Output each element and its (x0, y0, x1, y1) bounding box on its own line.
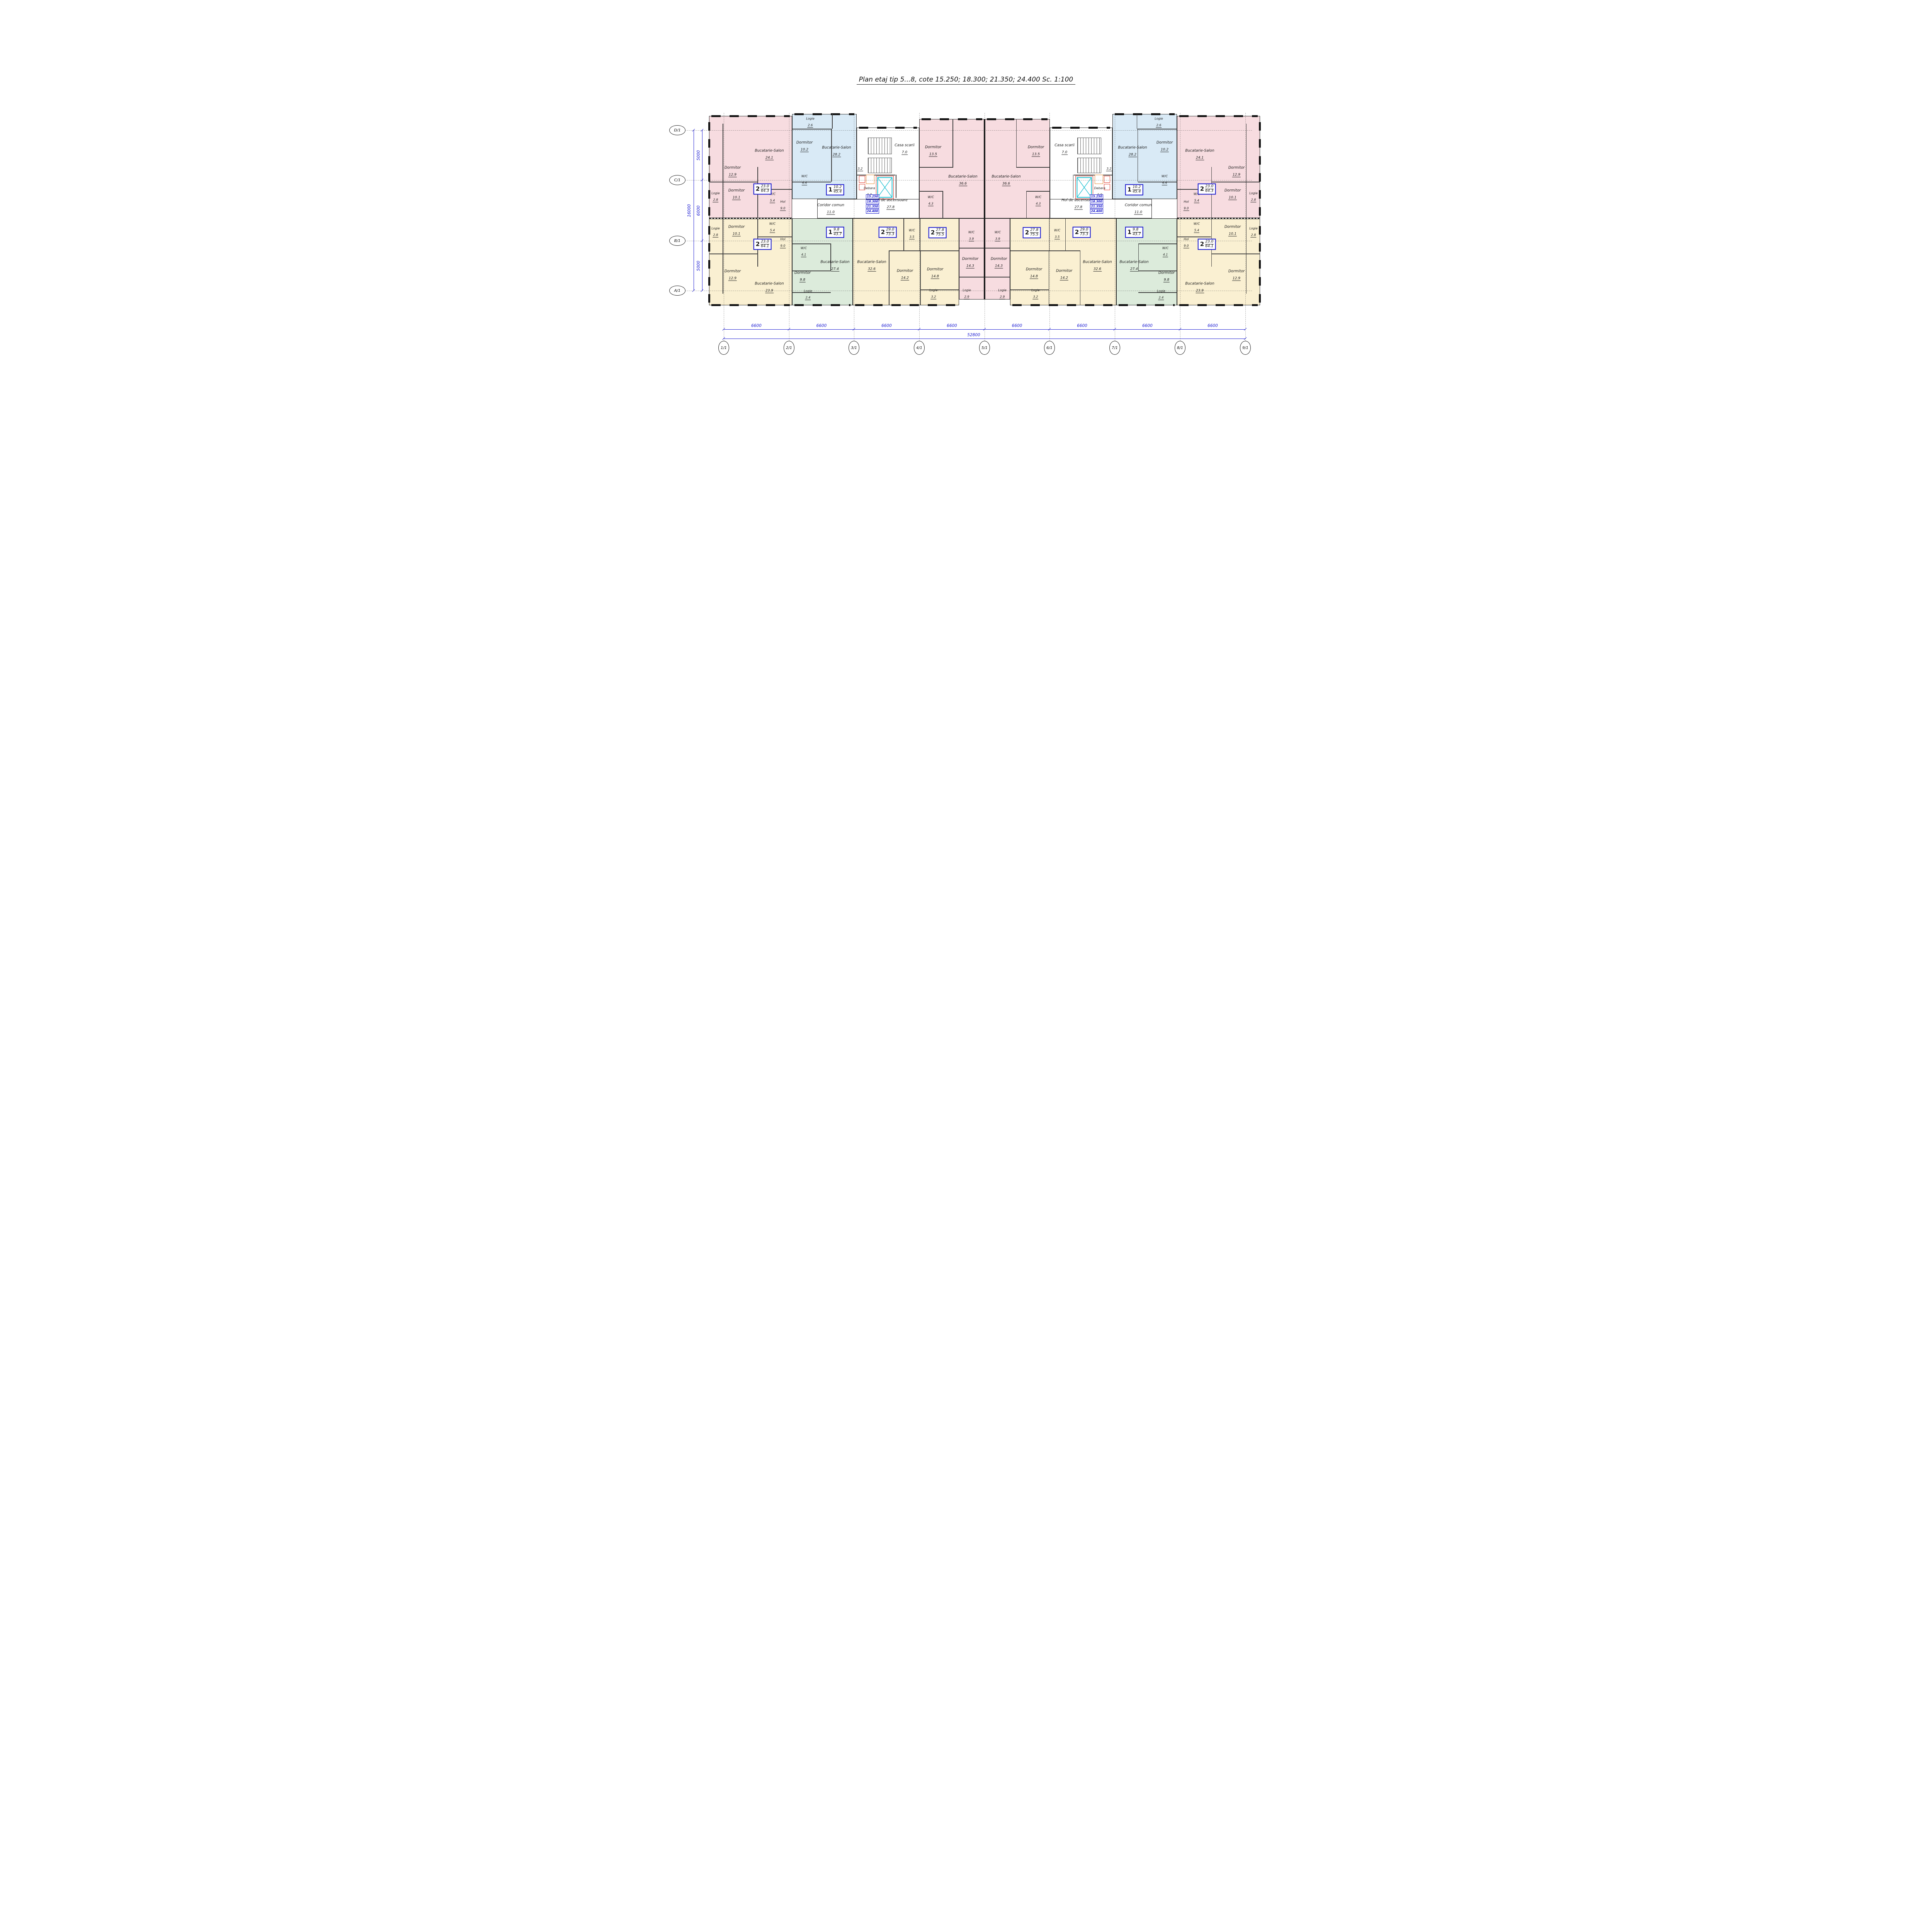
room-label-casa-scarii-7-0-mirror: Casa scarii7.0 (1054, 144, 1074, 155)
room-label-casa-scarii-7-0: Casa scarii7.0 (895, 144, 914, 155)
room-area: 12.9 (1232, 173, 1241, 177)
dim-label-6600: 6600 (947, 323, 957, 328)
drawing-title: Plan etaj tip 5...8, cote 15.250; 18.300… (665, 76, 1267, 83)
room-area: 2.8 (713, 199, 719, 203)
room-area: 4.4 (1162, 182, 1168, 186)
room-name: Dormitor (1156, 141, 1173, 145)
room-label-dormitor-10-1-mirror: Dormitor10.1 (1225, 225, 1241, 237)
room-label-bucatarie-salon-36-6-mirror: Bucatarie-Salon36.6 (992, 175, 1020, 186)
room-name: Logie (929, 289, 938, 293)
room-label-dormitor-10-2-mirror: Dormitor10.2 (1156, 141, 1173, 152)
apartment-badge-2-64-1-mirror: 223.064.1 (1198, 239, 1216, 250)
badge-room-count: 2 (881, 229, 885, 236)
dim-label-6000: 6000 (696, 205, 701, 216)
room-label-bucatarie-salon-36-6: Bucatarie-Salon36.6 (948, 175, 977, 186)
room-label-dormitor-9-8-mirror: Dormitor9.8 (1158, 271, 1175, 283)
room-name: Logie (1249, 227, 1258, 231)
interior-wall-4 (709, 254, 758, 254)
dim-label-6600: 6600 (751, 323, 762, 328)
room-name: W/C (1162, 247, 1168, 250)
room-area: 28.2 (832, 153, 841, 157)
interior-wall-28 (959, 277, 985, 277)
room-name: Bucatarie-Salon (822, 146, 851, 150)
room-label-dormitor-13-5-mirror: Dormitor13.5 (1028, 146, 1044, 157)
interior-wall-21 (920, 250, 921, 305)
badge-room-count: 1 (1128, 229, 1131, 236)
room-area: 23.9 (765, 289, 774, 293)
dim-label-6600: 6600 (1207, 323, 1218, 328)
axis-bubble-6-1: 6/1 (1044, 341, 1055, 355)
room-name: Dormitor (1026, 268, 1042, 272)
badge-total-area: 43.7 (1133, 233, 1141, 237)
room-name: W/C (769, 223, 776, 226)
room-area: 7.0 (901, 150, 908, 155)
interior-wall-23 (919, 167, 952, 168)
room-area: 3.2 (1106, 167, 1112, 171)
room-area: 14.3 (995, 264, 1003, 268)
room-name: W/C (995, 231, 1001, 235)
room-name: W/C (1162, 175, 1168, 179)
room-area: 2.8 (713, 234, 719, 238)
room-label-w-c-3-5: W/C3.5 (909, 229, 915, 240)
room-area: 3.9 (995, 238, 1001, 242)
interior-wall-11 (857, 175, 895, 175)
room-area: 3.2 (931, 296, 937, 300)
room-area: 12.9 (1232, 276, 1241, 281)
interior-wall-19-mirror (1065, 218, 1066, 250)
room-area: 2.6 (808, 124, 813, 128)
interior-wall-0 (723, 124, 723, 294)
room-area: 28.2 (1128, 153, 1137, 157)
room-name: W/C (1054, 229, 1060, 233)
room-area: 13.5 (1032, 152, 1040, 157)
room-name: Dormitor (1225, 189, 1241, 193)
axis-bubble-7-1: 7/1 (1109, 341, 1120, 355)
room-label-hol-9-0-mirror: Hol9.0 (1184, 238, 1189, 248)
interior-wall-12 (896, 175, 896, 198)
room-label-dormitor-14-3: Dormitor14.3 (962, 257, 978, 269)
elevation-value: 18.300 (866, 199, 879, 204)
room-area: 2.4 (805, 296, 811, 300)
interior-wall-26 (942, 191, 943, 218)
room-area: 3.2 (857, 167, 863, 171)
axis-bubble-1-1: 1/1 (718, 341, 729, 355)
dim-label-6600: 6600 (816, 323, 827, 328)
room-area: 4.3 (1036, 203, 1041, 206)
elevation-value: 15.250 (1090, 194, 1103, 199)
room-name: Bucatarie-Salon (1118, 146, 1147, 150)
room-name: Dormitor (728, 189, 745, 193)
room-area: 10.2 (1160, 148, 1169, 152)
room-label-dormitor-14-8-mirror: Dormitor14.8 (1026, 268, 1042, 279)
room-label-bucatarie-salon-27-4: Bucatarie-Salon27.4 (820, 260, 849, 272)
axis-bubble-4-1: 4/1 (914, 341, 925, 355)
dim-label-5000: 5000 (696, 260, 701, 271)
elevation-value: 21.350 (1090, 204, 1103, 209)
dim-label-6600: 6600 (1142, 323, 1153, 328)
room-label-bucatarie-salon-32-6-mirror: Bucatarie-Salon32.6 (1083, 260, 1112, 272)
interior-wall-27 (959, 248, 985, 248)
apartment-badge-2-75-5: 227.875.5 (929, 227, 947, 238)
room-label-dormitor-14-2-mirror: Dormitor14.2 (1056, 269, 1072, 281)
dim-line-total-left (694, 130, 694, 291)
room-area: 14.2 (901, 276, 909, 280)
axis-line-7-1 (1115, 113, 1115, 343)
interior-wall-17-mirror (1080, 250, 1081, 305)
badge-room-count: 2 (931, 229, 935, 236)
apartment-badge-1-43-7: 19.843.7 (826, 227, 844, 238)
interior-wall-23-mirror (1017, 167, 1050, 168)
room-name: Dormitor (1028, 146, 1044, 150)
room-name: Dormitor (796, 141, 813, 145)
room-name: Debara (864, 187, 875, 191)
apartment-badge-1-45-4-mirror: 110.245.4 (1125, 184, 1143, 196)
room-area: 14.8 (1030, 274, 1038, 279)
interior-wall-18 (889, 250, 959, 251)
interior-wall-22-mirror (1010, 289, 1049, 290)
room-name: Dormitor (728, 225, 745, 230)
badge-room-count: 2 (756, 186, 760, 192)
room-area: 11.0 (827, 210, 835, 214)
room-area: 10.2 (800, 148, 809, 152)
room-area: 9.8 (1163, 278, 1170, 282)
room-area: 24.1 (1196, 156, 1204, 160)
badge-total-area: 64.3 (1205, 189, 1213, 194)
room-area: 32.6 (1093, 267, 1102, 271)
room-area: 10.1 (1228, 196, 1237, 200)
room-area: 2.4 (1158, 296, 1164, 300)
room-area: 14.2 (1060, 276, 1068, 280)
room-name: W/C (909, 229, 915, 233)
room-label-dormitor-14-8: Dormitor14.8 (927, 268, 943, 279)
room-label-bucatarie-salon-24-1-mirror: Bucatarie-Salon24.1 (1185, 149, 1214, 160)
room-label-logie-3-2: Logie3.2 (929, 289, 938, 300)
interior-wall-12-mirror (1073, 175, 1074, 198)
room-label-logie-2-8-mirror: Logie2.8 (1249, 192, 1258, 203)
room-name: Bucatarie-Salon (1083, 260, 1112, 265)
drawing-sheet: Plan etaj tip 5...8, cote 15.250; 18.300… (665, 0, 1267, 426)
room-area: 4.3 (928, 203, 934, 206)
room-name: Dormitor (927, 268, 943, 272)
room-area: 36.6 (959, 182, 967, 186)
room-name: Bucatarie-Salon (992, 175, 1020, 179)
room-name: Dormitor (925, 146, 941, 150)
room-name: Dormitor (794, 271, 811, 276)
room-area: 2.9 (964, 296, 970, 300)
room-label-bucatarie-salon-27-4-mirror: Bucatarie-Salon27.4 (1119, 260, 1148, 272)
interior-wall-26-mirror (1026, 191, 1027, 218)
axis-line-1-1 (724, 113, 724, 343)
room-label-dormitor-14-2: Dormitor14.2 (897, 269, 913, 281)
dim-label-16000: 16000 (687, 204, 692, 217)
room-label-w-c-4-4: W/C4.4 (801, 175, 808, 186)
room-label-dormitor-10-1: Dormitor10.1 (728, 189, 745, 200)
room-area: 24.1 (765, 156, 774, 160)
room-name: Hol (1184, 201, 1189, 204)
room-name: Dormitor (1158, 271, 1175, 276)
room-label-logie-2-6-mirror: Logie2.6 (1155, 117, 1163, 128)
room-area: 27.8 (886, 205, 895, 209)
badge-room-count: 2 (1200, 186, 1204, 192)
room-label-dormitor-12-9-mirror: Dormitor12.9 (1228, 270, 1245, 281)
elevation-value: 21.350 (866, 204, 879, 209)
room-label-bucatarie-salon-23-9: Bucatarie-Salon23.9 (755, 282, 784, 293)
room-area: 10.1 (732, 232, 741, 236)
axis-bubble-5-1: 5/1 (979, 341, 990, 355)
room-area: 9.8 (799, 278, 806, 282)
room-label-w-c-3-9: W/C3.9 (968, 231, 975, 242)
room-area: 3.9 (969, 238, 975, 242)
room-label-hol-9-0-mirror: Hol9.0 (1184, 201, 1189, 211)
room-label-w-c-3-9-mirror: W/C3.9 (995, 231, 1001, 242)
room-name: Logie (806, 117, 815, 121)
axis-bubble-d-1: D/1 (669, 125, 685, 135)
interior-wall-0-mirror (1246, 124, 1247, 294)
dim-label-52800: 52800 (967, 333, 980, 337)
apartment-badge-2-75-5-mirror: 227.875.5 (1023, 227, 1041, 238)
room-area: 3.2 (1033, 296, 1039, 300)
room-name: Dormitor (1228, 270, 1245, 274)
room-name: Logie (963, 289, 971, 293)
interior-wall-8-mirror (1137, 114, 1138, 129)
room-name: Dormitor (724, 166, 741, 170)
dim-label-6600: 6600 (1077, 323, 1087, 328)
room-area: 32.6 (867, 267, 876, 271)
room-name: Logie (711, 192, 720, 196)
room-label-dormitor-12-9: Dormitor12.9 (724, 270, 741, 281)
interior-wall-25-mirror (1027, 191, 1050, 192)
axis-bubble-8-1: 8/1 (1175, 341, 1185, 355)
room-label-logie-2-4-mirror: Logie2.4 (1157, 290, 1165, 300)
room-area: 7.0 (1061, 150, 1068, 155)
elevation-stack: 15.25018.30021.35024.400 (866, 194, 879, 214)
axis-line-8-1 (1180, 113, 1180, 343)
room-name: W/C (968, 231, 975, 235)
room-area: 2.6 (1156, 124, 1162, 128)
room-label-logie-2-8: Logie2.8 (711, 192, 720, 203)
room-area: 9.0 (780, 207, 786, 211)
axis-bubble-a-1: A/1 (669, 286, 685, 296)
room-label-hol-9-0: Hol9.0 (780, 238, 786, 248)
axis-line-2-1 (789, 113, 789, 343)
interior-wall-25 (919, 191, 942, 192)
room-label-logie-2-4: Logie2.4 (804, 290, 812, 300)
room-name: W/C (801, 175, 808, 179)
floor-plan: 15.25018.30021.35024.40015.25018.30021.3… (665, 0, 1267, 426)
party-wall-0-mirror (1177, 218, 1260, 219)
badge-room-count: 1 (828, 229, 832, 236)
room-name: Dormitor (1056, 269, 1072, 274)
room-label-w-c-3-5-mirror: W/C3.5 (1054, 229, 1060, 240)
room-area: 3.5 (1054, 236, 1060, 240)
elevation-value: 15.250 (866, 194, 879, 199)
room-name: Logie (1157, 290, 1165, 293)
room-label-coridor-comun-11-0-mirror: Coridor comun11.0 (1125, 204, 1152, 215)
room-area: 9.0 (780, 245, 786, 248)
interior-wall-7 (792, 129, 832, 129)
room-name: Bucatarie-Salon (755, 282, 784, 286)
interior-wall-10-mirror (1138, 182, 1177, 182)
room-label-area-3-2: 3.2 (857, 164, 863, 171)
badge-total-area: 45.4 (1133, 190, 1141, 194)
axis-bubble-b-1: B/1 (669, 236, 685, 246)
room-name: Casa scarii (1054, 144, 1074, 148)
axis-line-5-1 (985, 113, 985, 343)
badge-total-area: 43.7 (833, 233, 842, 237)
interior-wall-6-mirror (1177, 237, 1211, 237)
room-area: 4.1 (1163, 254, 1168, 257)
room-area: 27.4 (831, 267, 839, 271)
interior-wall-21-mirror (1049, 250, 1049, 305)
room-area: 10.1 (1228, 232, 1237, 236)
elevation-value: 18.300 (1090, 199, 1103, 204)
room-label-w-c-4-3: W/C4.3 (928, 196, 934, 206)
interior-wall-24-mirror (1016, 119, 1017, 168)
room-area: 14.3 (966, 264, 975, 268)
badge-room-count: 1 (828, 186, 832, 193)
axis-line-d-1 (685, 130, 1252, 131)
storage-closet-icon-2-mirror (1095, 175, 1103, 184)
elevation-value: 24.400 (1090, 209, 1103, 214)
badge-total-area: 73.3 (886, 233, 894, 237)
room-area: 36.6 (1002, 182, 1010, 186)
room-area: 5.4 (1194, 229, 1200, 233)
axis-bubble-3-1: 3/1 (849, 341, 859, 355)
apartment-2r-end-top-mirror (1177, 116, 1260, 218)
room-area: 2.8 (1251, 199, 1257, 203)
room-name: Hol (1184, 238, 1189, 242)
room-name: Logie (1031, 289, 1040, 293)
interior-wall-10 (792, 182, 831, 182)
apartment-badge-2-64-3-mirror: 223.064.3 (1198, 184, 1216, 195)
badge-room-count: 2 (756, 241, 760, 248)
apartment-badge-2-64-3: 223.064.3 (753, 184, 772, 195)
room-area: 4.1 (801, 254, 807, 257)
badge-total-area: 64.1 (1205, 245, 1213, 249)
party-wall-0 (709, 218, 792, 219)
room-label-bucatarie-salon-28-2-mirror: Bucatarie-Salon28.2 (1118, 146, 1147, 157)
interior-wall-4-mirror (1211, 254, 1260, 254)
room-name: Dormitor (962, 257, 978, 262)
room-label-hol-9-0: Hol9.0 (780, 201, 786, 211)
room-name: Hol (780, 201, 786, 204)
room-name: Dormitor (991, 257, 1007, 262)
room-name: Bucatarie-Salon (1185, 149, 1214, 153)
room-area: 12.9 (728, 276, 737, 281)
room-label-bucatarie-salon-23-9-mirror: Bucatarie-Salon23.9 (1185, 282, 1214, 293)
axis-bubble-9-1: 9/1 (1240, 341, 1251, 355)
room-area: 5.4 (770, 229, 776, 233)
room-name: Hol (780, 238, 786, 242)
room-name: W/C (801, 247, 807, 250)
room-name: Coridor comun (817, 204, 844, 208)
stairs-icon-mirror (1077, 138, 1101, 173)
room-label-dormitor-14-3-mirror: Dormitor14.3 (991, 257, 1007, 269)
interior-wall-6 (758, 237, 792, 237)
interior-wall-20 (920, 218, 920, 250)
interior-wall-8 (832, 114, 833, 129)
room-name: Coridor comun (1125, 204, 1152, 208)
room-name: Logie (804, 290, 812, 293)
room-area: 11.0 (1134, 210, 1143, 214)
room-name: Debara (1094, 187, 1105, 191)
elevation-value: 24.400 (866, 209, 879, 214)
room-label-dormitor-12-9: Dormitor12.9 (724, 166, 741, 177)
axis-line-6-1 (1049, 113, 1050, 343)
room-name: Dormitor (1228, 166, 1245, 170)
room-name: W/C (1035, 196, 1041, 199)
dim-label-6600: 6600 (881, 323, 892, 328)
badge-room-count: 2 (1075, 229, 1079, 236)
dim-label-5000: 5000 (696, 150, 701, 160)
room-area: 2.9 (1000, 296, 1005, 300)
room-label-logie-2-6: Logie2.6 (806, 117, 815, 128)
room-label-bucatarie-salon-24-1: Bucatarie-Salon24.1 (755, 149, 784, 160)
room-label-w-c-4-1: W/C4.1 (801, 247, 807, 257)
room-area: 9.0 (1184, 207, 1189, 211)
room-label-dormitor-10-1: Dormitor10.1 (728, 225, 745, 237)
interior-wall-28-mirror (985, 277, 1010, 277)
room-area: 9.0 (1184, 245, 1189, 248)
storage-closet-icon-0-mirror (1104, 176, 1110, 183)
badge-total-area: 73.3 (1080, 233, 1088, 237)
room-name: Bucatarie-Salon (820, 260, 849, 265)
room-label-w-c-5-4: W/C5.4 (769, 223, 776, 233)
room-name: Dormitor (897, 269, 913, 274)
storage-closet-icon-0 (859, 176, 865, 183)
room-area: 10.1 (732, 196, 741, 200)
apartment-badge-1-43-7-mirror: 19.843.7 (1125, 227, 1143, 238)
apartment-badge-2-64-1: 223.064.1 (753, 239, 772, 250)
room-label-w-c-4-1-mirror: W/C4.1 (1162, 247, 1168, 257)
apartment-badge-1-45-4: 110.245.4 (826, 184, 844, 196)
room-name: Bucatarie-Salon (1119, 260, 1148, 265)
storage-closet-icon-2 (866, 175, 874, 184)
room-label-logie-3-2-mirror: Logie3.2 (1031, 289, 1040, 300)
interior-wall-22 (920, 289, 959, 290)
badge-total-area: 64.1 (761, 245, 769, 249)
badge-room-count: 2 (1025, 229, 1029, 236)
room-label-w-c-5-4-mirror: W/C5.4 (1194, 223, 1200, 233)
interior-wall-1 (709, 182, 758, 182)
room-name: Bucatarie-Salon (948, 175, 977, 179)
room-area: 5.4 (1194, 199, 1200, 203)
interior-wall-13-mirror (1138, 243, 1177, 244)
stairs-icon (868, 138, 892, 173)
dim-line-segments-left (702, 130, 702, 291)
room-area: 3.5 (909, 236, 915, 240)
room-area: 14.8 (931, 274, 939, 279)
room-name: W/C (928, 196, 934, 199)
apartment-badge-2-73-3: 229.073.3 (879, 227, 897, 238)
room-name: Logie (1249, 192, 1258, 196)
room-area: 13.5 (929, 152, 937, 157)
room-name: Bucatarie-Salon (755, 149, 784, 153)
room-label-logie-2-8-mirror: Logie2.8 (1249, 227, 1258, 238)
axis-bubble-c-1: C/1 (669, 175, 685, 185)
room-area: 27.8 (1074, 205, 1083, 209)
room-name: Bucatarie-Salon (857, 260, 886, 265)
dim-label-6600: 6600 (1012, 323, 1022, 328)
room-label-logie-2-8: Logie2.8 (711, 227, 720, 238)
room-label-logie-2-9-mirror: Logie2.9 (998, 289, 1007, 300)
room-name: W/C (1194, 223, 1200, 226)
room-label-w-c-4-4-mirror: W/C4.4 (1162, 175, 1168, 186)
axis-line-3-1 (854, 113, 854, 343)
room-area: 2.8 (1251, 234, 1257, 238)
room-label-bucatarie-salon-28-2: Bucatarie-Salon28.2 (822, 146, 851, 157)
room-label-area-3-2-mirror: 3.2 (1106, 164, 1112, 171)
